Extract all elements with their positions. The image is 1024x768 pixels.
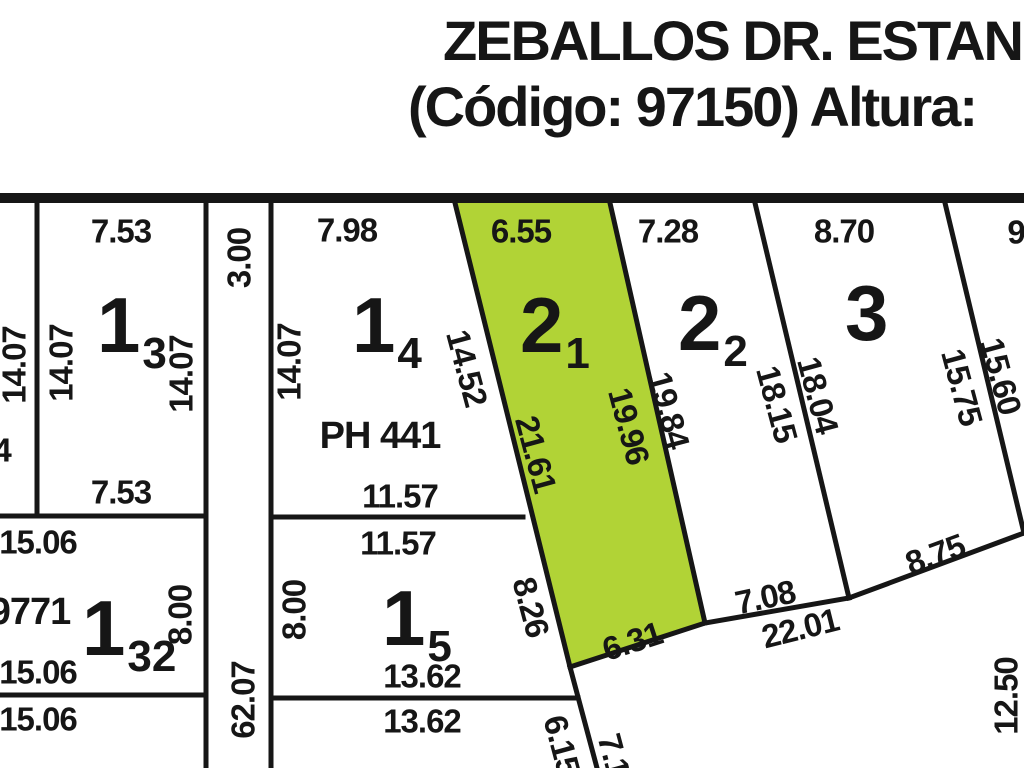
parcel-number-3: 3 <box>845 269 888 357</box>
dimension-label: 11.57 <box>360 525 436 562</box>
dimension-label: 3.00 <box>221 228 258 288</box>
dimension-label: 7.28 <box>638 213 699 250</box>
dimension-label: 14.07 <box>0 326 33 404</box>
dimension-label: 15.06 <box>0 654 77 691</box>
dimension-label: 14.07 <box>271 323 308 401</box>
dimension-label: 8.70 <box>814 213 874 250</box>
parcel-number-1-below-5: 1 <box>376 756 419 768</box>
parcel-number-1-4: 14 <box>352 281 422 378</box>
dimension-label: 14.07 <box>43 324 80 402</box>
dimension-label: 7.1 <box>591 730 638 768</box>
dimension-label: 62.07 <box>225 661 262 739</box>
parcel-map: 7.533.007.986.557.288.70914.0714.0714.07… <box>0 0 1024 768</box>
dimension-label: 7.53 <box>91 474 152 511</box>
dimension-label: 11.57 <box>362 478 438 515</box>
dimension-label: 6.15 <box>536 711 587 768</box>
dimension-label: 8.00 <box>276 580 313 640</box>
dimension-label: 6.55 <box>491 213 552 250</box>
dimension-label: 4 <box>0 432 12 469</box>
dimension-label: 7.53 <box>91 213 152 250</box>
dimension-label: 15.06 <box>0 524 77 561</box>
parcel-annotation-1-4: PH 441 <box>320 415 442 457</box>
dimension-label: 8.75 <box>900 526 970 582</box>
dimension-label: 15.06 <box>0 701 77 738</box>
parcel-number-1-below-32: 1 <box>8 751 51 768</box>
parcel-number-2-2: 22 <box>678 279 748 376</box>
dimension-label: 12.50 <box>988 657 1024 735</box>
parcel-number-1-5: 15 <box>382 574 452 671</box>
dimension-label: 14.07 <box>163 335 200 413</box>
parcel-number-1-3: 13 <box>97 281 167 378</box>
parcel-annotation-1-32: 9771 <box>0 591 71 633</box>
dimension-label: 13.62 <box>383 703 461 740</box>
dimension-label: 7.98 <box>317 212 378 249</box>
dimension-label: 9 <box>1007 214 1024 251</box>
